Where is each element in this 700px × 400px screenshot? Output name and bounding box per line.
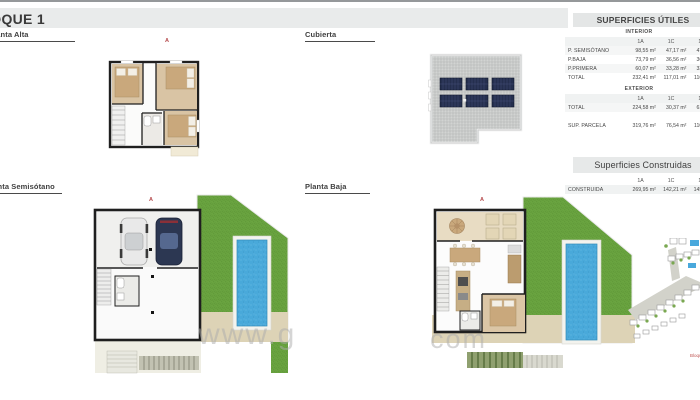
table-row: TOTAL 232,41 m² 117,01 m² 116,87 m²	[565, 73, 700, 82]
sink-icon	[117, 293, 124, 300]
table-row: P. SEMISÓTANO 98,55 m² 47,17 m² 47,14 m²	[565, 46, 700, 55]
sink-icon	[471, 313, 477, 319]
stairs	[437, 267, 449, 311]
stairs	[112, 106, 125, 145]
bed-icon	[168, 115, 196, 137]
site-plan-render	[628, 238, 700, 368]
label-planta-semisotano: Planta Semisótano	[0, 182, 62, 194]
toilet-icon	[117, 278, 124, 288]
bathroom	[115, 276, 139, 306]
planta-baja-plan	[420, 193, 635, 393]
site-plan-caption: Bloque	[690, 353, 700, 358]
planta-semisotano-plan	[85, 193, 303, 393]
solar-panel-icon	[466, 95, 488, 107]
title-bar: BLOQUE 1	[0, 8, 568, 28]
table-row: P.BAJA 73,79 m² 36,56 m² 36,46 m²	[565, 55, 700, 64]
balcony	[171, 147, 198, 156]
window	[170, 61, 182, 63]
car-white-icon	[120, 218, 148, 265]
solar-panel-icon	[492, 78, 514, 90]
toilet-icon	[462, 313, 468, 321]
window	[121, 61, 133, 63]
bedroom	[482, 294, 525, 332]
pool	[237, 240, 267, 326]
exterior-steps	[523, 355, 563, 368]
table-title-superficies-utiles: SUPERFICIES ÚTILES	[573, 13, 700, 27]
label-cubierta: Cubierta	[305, 30, 375, 42]
cabinet-icon	[508, 255, 521, 283]
kitchen-island-icon	[456, 271, 470, 311]
sink-icon	[153, 116, 160, 123]
side-steps	[107, 351, 137, 373]
exterior-steps	[139, 356, 199, 370]
toilet-icon	[144, 116, 151, 126]
pool	[688, 263, 696, 268]
table-row: CONSTRUIDA 269,95 m² 142,21 m² 145,05 m²	[565, 185, 700, 194]
watermark-text: www.g	[198, 318, 296, 352]
road	[628, 276, 700, 320]
table-row: SUP. PARCELA 319,76 m² 76,54 m² 110,65 m…	[565, 121, 700, 130]
construidas-header-row: 1A 1C 1D	[565, 176, 700, 185]
top-divider	[0, 0, 700, 2]
solar-panel-icon	[492, 95, 514, 107]
label-planta-baja: Planta Baja	[305, 182, 370, 194]
table-title-superficies-construidas: Superficies Construidas	[573, 157, 700, 173]
car-dark-icon	[156, 218, 182, 265]
round-table-icon	[450, 219, 465, 234]
interior-header-row: 1A 1C 1D	[565, 37, 700, 46]
pool	[690, 240, 699, 246]
window	[197, 120, 199, 132]
solar-panel-icon	[440, 95, 462, 107]
bed-icon	[166, 67, 195, 89]
section-marker-a-alta: A	[165, 38, 169, 44]
bed-icon	[115, 67, 139, 97]
planta-alta-plan	[95, 50, 225, 165]
solar-panel-icon	[466, 78, 488, 90]
solar-panel-icon	[440, 78, 462, 90]
stairs	[97, 269, 111, 305]
section-interior: INTERIOR	[565, 29, 700, 35]
pool	[566, 244, 597, 340]
label-planta-alta: Planta Alta	[0, 30, 75, 42]
table-row: TOTAL 224,58 m² 30,37 m² 61,15 m²	[565, 103, 700, 112]
garage-floor	[97, 212, 198, 267]
page-title: BLOQUE 1	[0, 11, 45, 27]
table-row: P.PRIMERA 60,07 m² 33,28 m² 33,27 m²	[565, 64, 700, 73]
watermark-text: com	[430, 324, 487, 355]
fridge-icon	[508, 245, 521, 253]
cubierta-plan	[425, 52, 530, 150]
exterior-header-row: 1A 1C 1D	[565, 94, 700, 103]
section-exterior: EXTERIOR	[565, 86, 700, 92]
